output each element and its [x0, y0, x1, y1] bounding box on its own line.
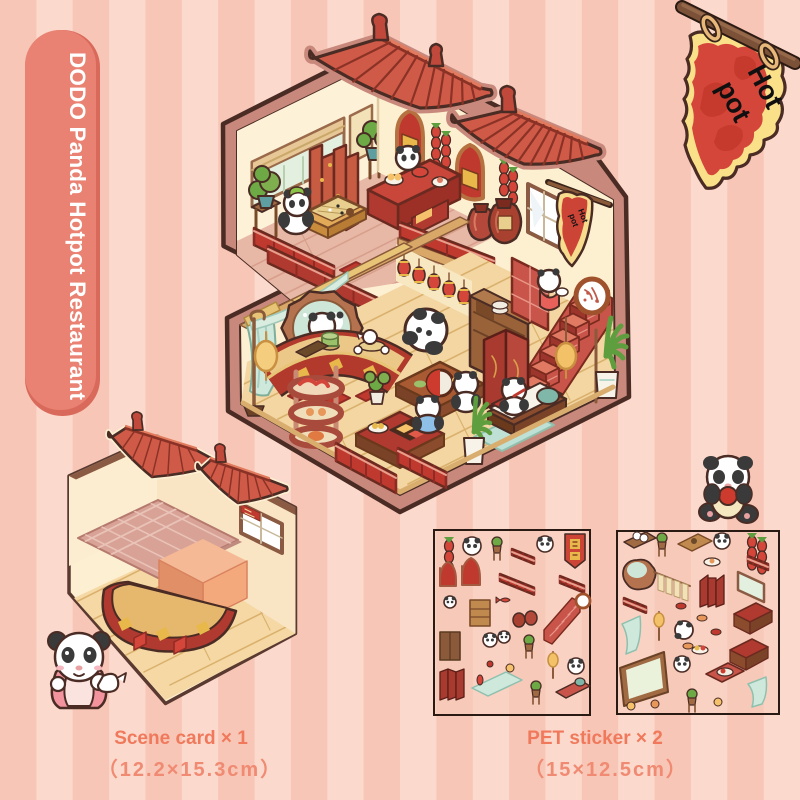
svg-text:DODO Panda Hotpot Restaurant: DODO Panda Hotpot Restaurant [65, 52, 90, 401]
svg-text:Scene card × 1: Scene card × 1 [114, 728, 248, 749]
svg-text:（15×12.5cm）: （15×12.5cm） [524, 758, 688, 781]
svg-text:（12.2×15.3cm）: （12.2×15.3cm） [98, 758, 282, 781]
svg-text:PET sticker × 2: PET sticker × 2 [527, 728, 663, 749]
